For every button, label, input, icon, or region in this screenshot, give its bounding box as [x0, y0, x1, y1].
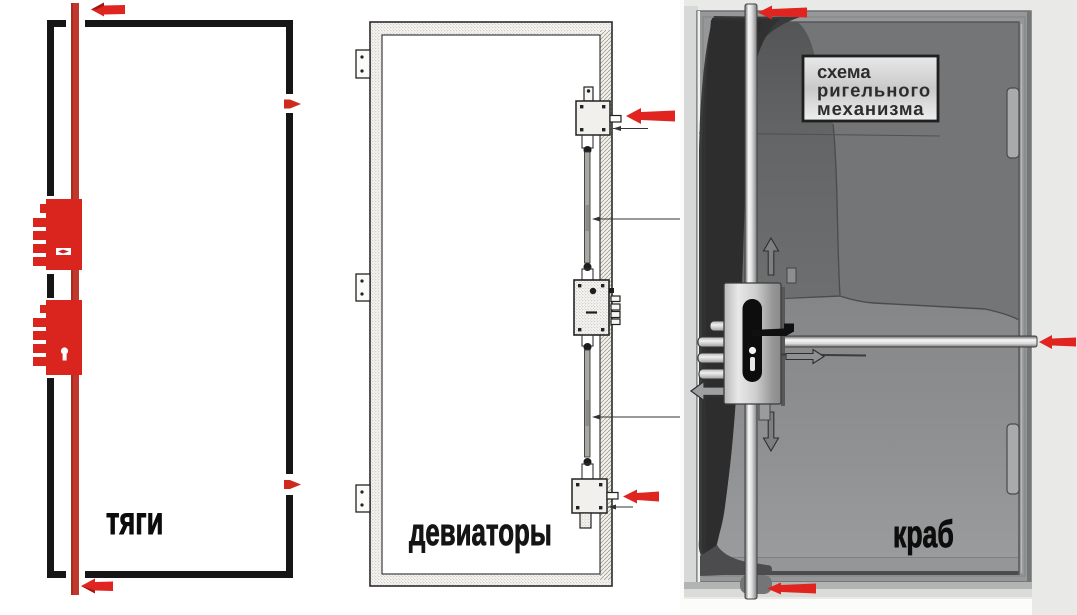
svg-text:краб: краб: [893, 514, 954, 556]
svg-text:девиаторы: девиаторы: [409, 512, 552, 554]
svg-text:тяги: тяги: [106, 500, 163, 543]
svg-text:механизма: механизма: [817, 98, 924, 119]
